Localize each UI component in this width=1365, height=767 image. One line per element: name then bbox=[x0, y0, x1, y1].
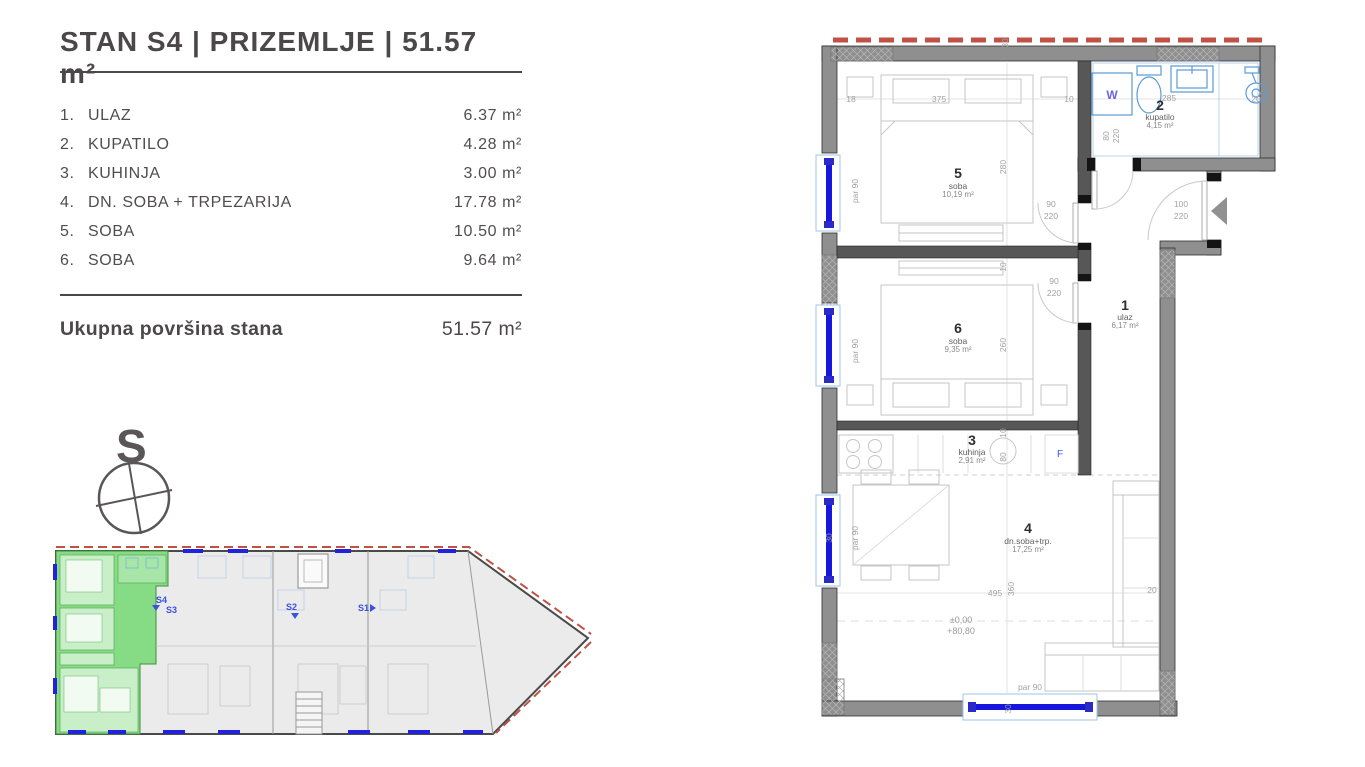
page-title: STAN S4 | PRIZEMLJE | 51.57 m² bbox=[60, 26, 522, 90]
door-room5 bbox=[1038, 203, 1078, 243]
apartment-info-panel: STAN S4 | PRIZEMLJE | 51.57 m² 1. ULAZ 6… bbox=[60, 26, 522, 90]
svg-text:30: 30 bbox=[1000, 38, 1010, 48]
apartment-floor-plan: 5 soba 10,19 m² 2 kupatilo 4,15 m² 1 ula… bbox=[815, 33, 1285, 733]
label-room6: 6 soba 9,35 m² bbox=[944, 320, 971, 354]
room-list: 1. ULAZ 6.37 m² 2. KUPATILO 4.28 m² 3. K… bbox=[60, 101, 522, 275]
room-name: SOBA bbox=[88, 223, 454, 241]
level-marks: ±0,00 +80,80 bbox=[947, 615, 975, 636]
svg-text:10: 10 bbox=[998, 262, 1008, 272]
sink bbox=[1171, 66, 1213, 92]
unit-label-s1: S1 bbox=[358, 603, 369, 613]
door-bathroom bbox=[1092, 171, 1133, 209]
room-area: 9.64 m² bbox=[464, 252, 522, 270]
svg-text:18: 18 bbox=[846, 94, 856, 104]
svg-text:3: 3 bbox=[968, 432, 976, 448]
room-list-row: 3. KUHINJA 3.00 m² bbox=[60, 159, 522, 188]
svg-text:4,15 m²: 4,15 m² bbox=[1146, 121, 1173, 130]
svg-text:±0,00: ±0,00 bbox=[950, 615, 972, 625]
unit-label-s3: S3 bbox=[166, 605, 177, 615]
svg-text:280: 280 bbox=[998, 160, 1008, 174]
room-area: 3.00 m² bbox=[464, 165, 522, 183]
svg-text:220: 220 bbox=[1174, 211, 1188, 221]
washer-letter: W bbox=[1106, 88, 1118, 102]
elevator-shaft bbox=[298, 554, 328, 588]
svg-text:par 90: par 90 bbox=[1018, 682, 1042, 692]
unit-label-s2: S2 bbox=[286, 602, 297, 612]
divider-top bbox=[60, 71, 522, 73]
window-room5 bbox=[816, 155, 840, 231]
room-list-row: 4. DN. SOBA + TRPEZARIJA 17.78 m² bbox=[60, 188, 522, 217]
room-number: 3. bbox=[60, 165, 88, 183]
svg-text:par 90: par 90 bbox=[850, 526, 860, 550]
living-room-furniture bbox=[853, 470, 1159, 691]
room-name: SOBA bbox=[88, 252, 464, 270]
svg-text:100: 100 bbox=[1174, 199, 1188, 209]
room-number: 4. bbox=[60, 194, 88, 212]
svg-text:285: 285 bbox=[1162, 93, 1176, 103]
exterior-walls bbox=[822, 46, 1275, 716]
divider-bottom bbox=[60, 294, 522, 296]
dining-table bbox=[853, 470, 949, 580]
room-number: 1. bbox=[60, 107, 88, 125]
svg-text:4: 4 bbox=[1024, 520, 1032, 536]
svg-text:10,19 m²: 10,19 m² bbox=[942, 190, 974, 199]
bedroom5-furniture bbox=[847, 75, 1067, 241]
room-number: 2. bbox=[60, 136, 88, 154]
svg-text:1: 1 bbox=[1121, 297, 1129, 313]
svg-text:90: 90 bbox=[1049, 276, 1059, 286]
svg-text:10: 10 bbox=[1064, 94, 1074, 104]
room-area: 17.78 m² bbox=[454, 194, 522, 212]
svg-text:30: 30 bbox=[824, 533, 834, 543]
stairs bbox=[296, 692, 322, 734]
entrance-arrow-icon bbox=[1211, 197, 1227, 225]
room-list-row: 1. ULAZ 6.37 m² bbox=[60, 101, 522, 130]
room-list-row: 5. SOBA 10.50 m² bbox=[60, 217, 522, 246]
svg-text:260: 260 bbox=[998, 338, 1008, 352]
north-compass: S bbox=[58, 412, 218, 552]
svg-text:30: 30 bbox=[1003, 704, 1013, 714]
unit-label-s4: S4 bbox=[156, 595, 167, 605]
room-number: 6. bbox=[60, 252, 88, 270]
svg-text:360: 360 bbox=[1006, 582, 1016, 596]
svg-text:20: 20 bbox=[1251, 94, 1261, 104]
sofa bbox=[1045, 481, 1159, 691]
svg-text:80: 80 bbox=[998, 452, 1008, 462]
window-living-bottom bbox=[963, 694, 1097, 720]
room-area: 10.50 m² bbox=[454, 223, 522, 241]
svg-text:80: 80 bbox=[1101, 131, 1111, 141]
room-name: KUHINJA bbox=[88, 165, 464, 183]
label-room5: 5 soba 10,19 m² bbox=[942, 165, 974, 199]
label-room3: 3 kuhinja 2,91 m² bbox=[958, 432, 985, 465]
svg-text:220: 220 bbox=[1111, 129, 1121, 143]
total-area-value: 51.57 m² bbox=[442, 318, 522, 341]
dimension-labels: 30 18 375 10 285 20 280 80 220 90 220 10… bbox=[824, 38, 1261, 714]
svg-text:375: 375 bbox=[932, 94, 946, 104]
svg-text:90: 90 bbox=[1046, 199, 1056, 209]
floor-plan-sheet: STAN S4 | PRIZEMLJE | 51.57 m² 1. ULAZ 6… bbox=[0, 0, 1365, 767]
room-area: 6.37 m² bbox=[464, 107, 522, 125]
dimension-guides bbox=[837, 63, 1270, 693]
svg-text:par 90: par 90 bbox=[850, 179, 860, 203]
svg-text:220: 220 bbox=[1044, 211, 1058, 221]
svg-text:5: 5 bbox=[954, 165, 962, 181]
svg-text:6,17 m²: 6,17 m² bbox=[1111, 321, 1138, 330]
fridge-letter: F bbox=[1057, 449, 1063, 460]
svg-text:20: 20 bbox=[1147, 585, 1157, 595]
room-name: KUPATILO bbox=[88, 136, 464, 154]
room-name: DN. SOBA + TRPEZARIJA bbox=[88, 194, 454, 212]
room-number: 5. bbox=[60, 223, 88, 241]
svg-text:+80,80: +80,80 bbox=[947, 626, 975, 636]
label-room1: 1 ulaz 6,17 m² bbox=[1111, 297, 1138, 330]
total-area-row: Ukupna površina stana 51.57 m² bbox=[60, 318, 522, 341]
room-name: ULAZ bbox=[88, 107, 464, 125]
svg-text:9,35 m²: 9,35 m² bbox=[944, 345, 971, 354]
svg-text:495: 495 bbox=[988, 588, 1002, 598]
building-overview-plan: S4 S3 S2 S1 bbox=[48, 546, 603, 746]
label-room4: 4 dn.soba+trp. 17,25 m² bbox=[1004, 520, 1052, 554]
stove bbox=[839, 435, 893, 473]
window-room6 bbox=[816, 305, 840, 386]
total-area-label: Ukupna površina stana bbox=[60, 318, 442, 341]
svg-text:17,25 m²: 17,25 m² bbox=[1012, 545, 1044, 554]
svg-text:6: 6 bbox=[954, 320, 962, 336]
svg-text:par 90: par 90 bbox=[850, 339, 860, 363]
room-area: 4.28 m² bbox=[464, 136, 522, 154]
room-list-row: 6. SOBA 9.64 m² bbox=[60, 246, 522, 275]
svg-text:10: 10 bbox=[998, 428, 1008, 438]
svg-text:220: 220 bbox=[1047, 288, 1061, 298]
svg-text:2,91 m²: 2,91 m² bbox=[958, 456, 985, 465]
room-list-row: 2. KUPATILO 4.28 m² bbox=[60, 130, 522, 159]
